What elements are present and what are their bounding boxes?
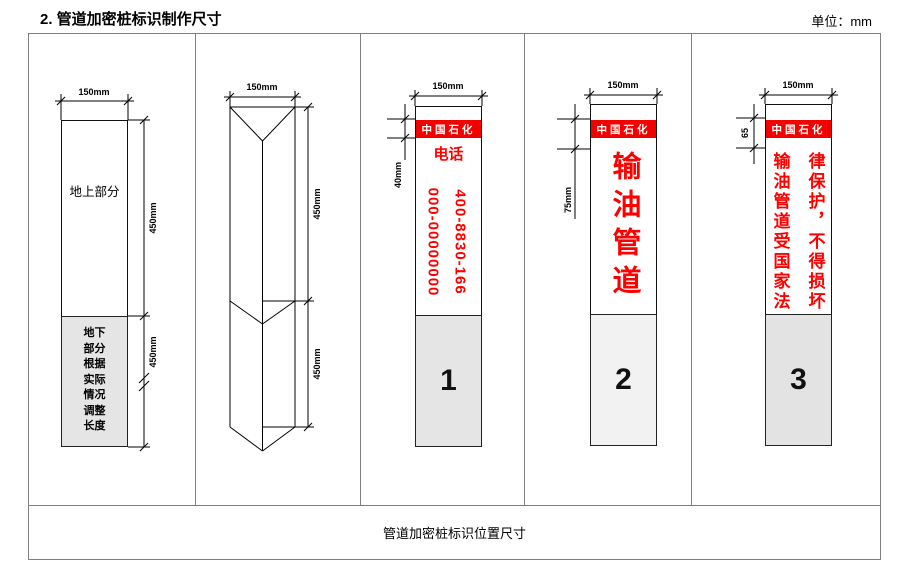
marker-post-outline: 中国石化 电话 000-00000000 400-8830-166 1	[415, 106, 482, 447]
width-dim-label: 150mm	[246, 82, 277, 92]
header-height-dim-label: 75mm	[563, 187, 573, 213]
width-dim-label: 150mm	[78, 87, 109, 97]
post-number: 3	[790, 363, 807, 397]
header-height-dim-label: 65	[740, 128, 750, 138]
caption-row: 管道加密桩标识位置尺寸	[29, 506, 880, 559]
pipeline-text: 输油管道	[603, 151, 645, 303]
sinopec-banner: 中国石化	[591, 120, 656, 138]
phone-number-left: 000-00000000	[425, 188, 442, 297]
width-dim-label: 150mm	[607, 80, 638, 90]
panel-prism-view: 150mm 450mm 450mm	[195, 34, 360, 505]
post-number: 1	[440, 364, 457, 398]
above-ground-dim-label: 450mm	[148, 202, 158, 233]
sinopec-banner: 中国石化	[416, 120, 481, 138]
prism-outline-and-dims	[196, 34, 361, 506]
panel-law-face: 150mm 65 中国石化 输油管道受国家法 律保护，不得损坏 3	[691, 34, 880, 505]
panel-front-view: 150mm 450mm 450mm 地上部分 地下部分根据实际情况调整长度	[29, 34, 195, 505]
caption-text: 管道加密桩标识位置尺寸	[383, 523, 526, 542]
phone-number-right: 400-8830-166	[452, 189, 469, 294]
above-ground-label: 地上部分	[69, 181, 119, 200]
number-box-3: 3	[765, 314, 832, 446]
below-ground-dim-label: 450mm	[148, 336, 158, 367]
panel-phone-face: 150mm 40mm 中国石化 电话 000-00000000 400-8830…	[360, 34, 524, 505]
phone-label: 电话	[433, 143, 463, 164]
unit-label: 单位：mm	[811, 11, 872, 30]
marker-post-outline: 中国石化 输油管道 2	[590, 104, 657, 446]
page-title: 2. 管道加密桩标识制作尺寸	[40, 8, 222, 29]
panel-pipeline-face: 150mm 75mm 中国石化 输油管道 2	[524, 34, 691, 505]
width-dim-label: 150mm	[782, 80, 813, 90]
banner-height-dim-label: 40mm	[393, 162, 403, 188]
width-dim-label: 150mm	[432, 81, 463, 91]
upper-dim-label: 450mm	[312, 188, 322, 219]
sinopec-banner: 中国石化	[766, 120, 831, 138]
underground-note: 地下部分根据实际情况调整长度	[82, 326, 107, 435]
drawing-row: 150mm 450mm 450mm 地上部分 地下部分根据实际情况调整长度	[29, 34, 880, 506]
law-text-column-2: 律保护，不得损坏	[803, 152, 828, 312]
number-box-2: 2	[590, 314, 657, 446]
lower-dim-label: 450mm	[312, 348, 322, 379]
marker-post-outline: 中国石化 输油管道受国家法 律保护，不得损坏 3	[765, 104, 832, 446]
number-box-1: 1	[415, 315, 482, 447]
marker-post-outline: 地上部分 地下部分根据实际情况调整长度	[61, 120, 128, 447]
post-number: 2	[615, 363, 632, 397]
law-text-column-1: 输油管道受国家法	[768, 152, 793, 312]
drawing-table: 150mm 450mm 450mm 地上部分 地下部分根据实际情况调整长度	[28, 33, 881, 560]
underground-section: 地下部分根据实际情况调整长度	[61, 316, 128, 447]
